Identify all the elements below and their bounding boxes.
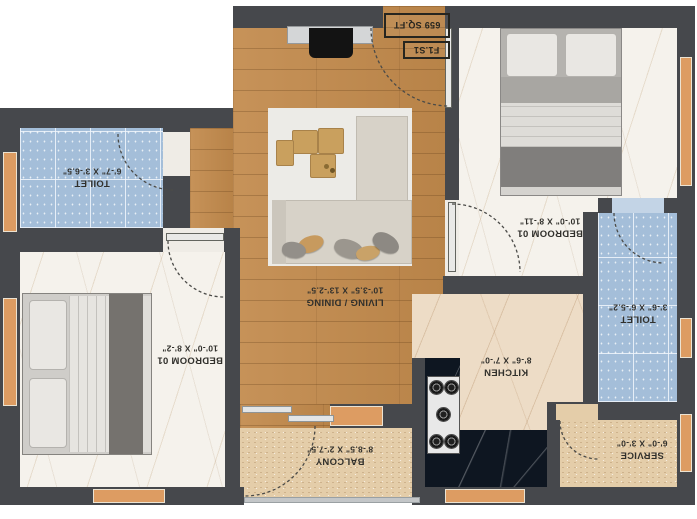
bedroom2-bed-sheet (501, 103, 621, 147)
room-name: TOILET (578, 312, 697, 324)
wall-kitchen-left (412, 358, 425, 505)
bedroom1-pillow-2 (29, 378, 67, 448)
bedroom2-bed-runner (501, 147, 621, 187)
room-name: SERVICE (582, 448, 697, 460)
floor-plan: TOILET 6'-7" X 3'-6.5" BEDROOM 01 10'-0"… (0, 0, 697, 519)
bedroom1-bed (22, 293, 152, 455)
wall-bedroom2-bottom (443, 276, 598, 294)
wall-top-right (451, 6, 695, 28)
room-dims: 6'-0" X 3'-0" (582, 437, 697, 448)
toilet1-door-opening (163, 132, 190, 176)
window-bedroom1-bottom (93, 489, 165, 503)
balcony-railing (244, 497, 420, 503)
room-name: LIVING / DINING (285, 295, 405, 307)
toilet1-label: TOILET 6'-7" X 3'-6.5" (32, 165, 152, 188)
window-kitchen-bottom (445, 489, 525, 503)
room-dims: 8'-8.5" X 2'-7.5" (280, 443, 400, 454)
stove-burner-icon (437, 408, 450, 421)
toilet1-corridor-floor (190, 128, 233, 228)
room-name: BEDROOM 01 (490, 226, 610, 238)
bedroom2-pillow-1 (506, 33, 558, 77)
living-dining-label: LIVING / DINING 10'-3.5" X 13'-2.5" (285, 284, 405, 307)
stove (427, 376, 460, 454)
toilet2-door-opening (612, 198, 664, 213)
bedroom1-bed-runner (109, 294, 143, 454)
coffee-table-block-1 (292, 130, 318, 154)
stove-burner-icon (430, 381, 443, 394)
wall-bottom-service (560, 487, 695, 505)
bedroom2-label: BEDROOM 01 10'-0" X 8'-11" (490, 215, 610, 238)
wall-bedroom1-right (225, 228, 240, 505)
room-name: TOILET (32, 176, 152, 188)
entry-door-leaf (445, 28, 452, 108)
coffee-table-block-4 (310, 154, 336, 178)
bedroom1-door-leaf (166, 233, 224, 241)
room-name: KITCHEN (446, 365, 566, 377)
service-label: SERVICE 6'-0" X 3'-0" (582, 437, 697, 460)
window-bedroom1-left (3, 298, 17, 406)
coffee-table-block-3 (276, 140, 294, 166)
bedroom2-pillow-2 (565, 33, 617, 77)
wall-toilet1-top (0, 108, 233, 128)
wall-top-left (233, 6, 383, 28)
kitchen-label: KITCHEN 8'-6" X 7'-0" (446, 354, 566, 377)
bedroom1-bed-edge (143, 296, 151, 452)
room-dims: 10'-0" X 8'-2" (130, 342, 250, 353)
window-toilet1-left (3, 152, 17, 232)
room-dims: 6'-7" X 3'-6.5" (32, 165, 152, 176)
balcony-label: BALCONY 8'-8.5" X 2'-7.5" (280, 443, 400, 466)
room-dims: 10'-3.5" X 13'-2.5" (285, 284, 405, 295)
room-name: BEDROOM 01 (130, 353, 250, 365)
room-dims: 10'-0" X 8'-11" (490, 215, 610, 226)
tv (309, 28, 353, 58)
balcony-slider-panel-2 (288, 415, 334, 422)
toilet2-label: TOILET 3'-6" X 6'-5.2" (578, 301, 697, 324)
room-name: BALCONY (280, 454, 400, 466)
table-decor-dot-2 (330, 168, 335, 173)
bedroom2-bed-band-1 (501, 77, 621, 103)
area-label: 659 SQ.FT (394, 21, 441, 31)
table-decor-dot-1 (324, 164, 329, 169)
unit-label: F1.S1 (414, 45, 440, 55)
bedroom1-label: BEDROOM 01 10'-0" X 8'-2" (130, 342, 250, 365)
bedroom2-bed (500, 28, 622, 196)
service-door-opening (556, 404, 598, 420)
room-dims: 3'-6" X 6'-5.2" (578, 301, 697, 312)
bedroom1-bed-sheet (69, 296, 109, 452)
room-dims: 8'-6" X 7'-0" (446, 354, 566, 365)
stove-burner-icon (430, 435, 443, 448)
bedroom1-pillow-1 (29, 300, 67, 370)
stove-burner-icon (445, 381, 458, 394)
area-box: 659 SQ.FT (384, 13, 450, 38)
living-furniture-area (268, 108, 412, 266)
unit-box: F1.S1 (403, 41, 450, 59)
stove-burner-icon (445, 435, 458, 448)
balcony-slider-panel-1 (242, 406, 292, 413)
coffee-table-block-2 (318, 128, 344, 154)
bedroom2-bed-edge (501, 187, 621, 195)
bedroom2-door-leaf (448, 202, 456, 272)
window-balcony-wall (330, 406, 383, 426)
window-bedroom2-right (680, 57, 692, 186)
